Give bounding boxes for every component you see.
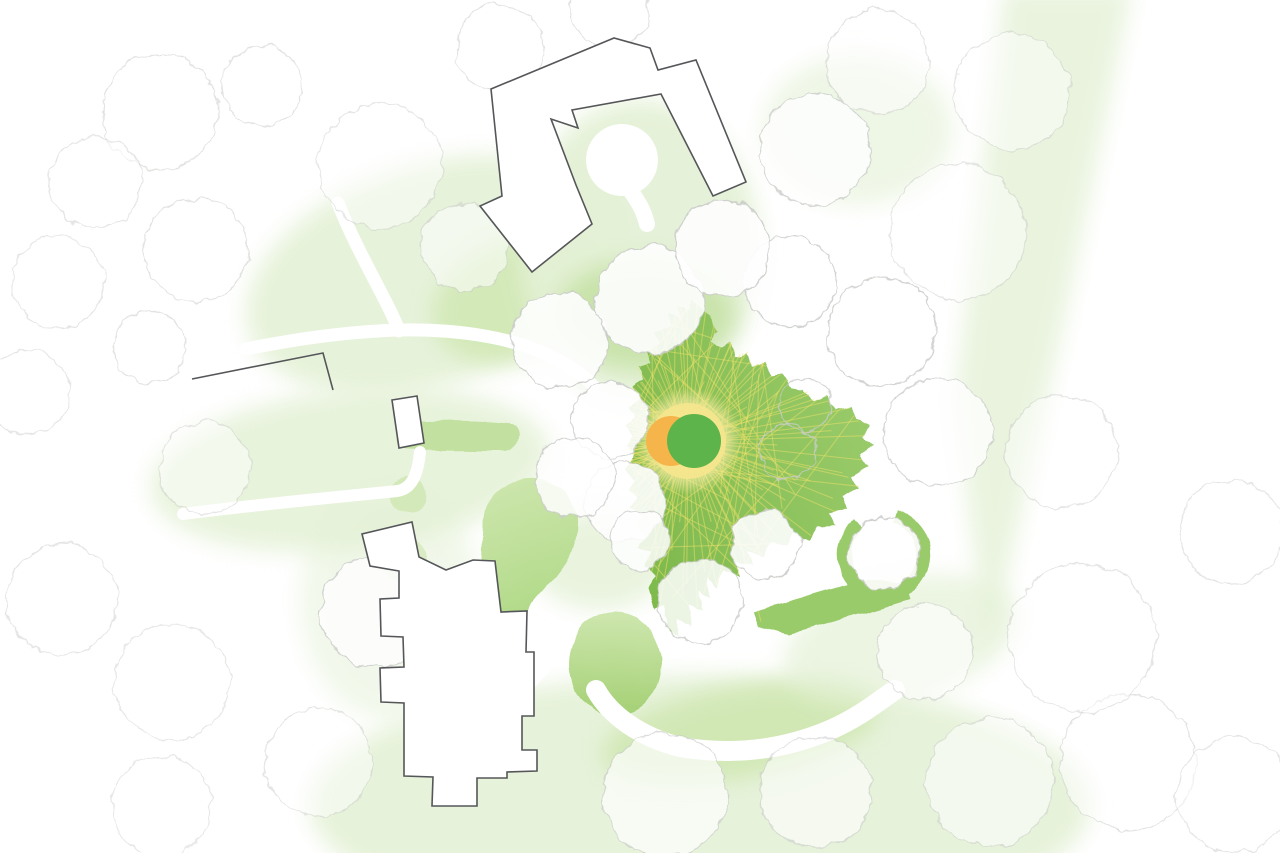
tree-canopy — [112, 756, 212, 853]
tree-canopy — [610, 510, 670, 570]
tree-canopy — [1180, 480, 1280, 584]
tree-canopy — [1006, 396, 1118, 508]
tree-canopy — [12, 236, 104, 328]
tree-canopy — [603, 733, 727, 853]
tree-canopy — [884, 378, 992, 486]
tree-canopy — [512, 292, 608, 388]
tree-canopy — [6, 544, 118, 656]
tree-canopy — [535, 437, 615, 517]
tree-canopy — [926, 718, 1054, 846]
tree-canopy — [114, 624, 230, 740]
tree-canopy — [1060, 694, 1196, 830]
tree-canopy — [222, 46, 302, 126]
tree-canopy — [264, 708, 372, 816]
tree-canopy — [658, 558, 742, 642]
tree-canopy — [877, 604, 973, 700]
tree-canopy — [114, 311, 186, 383]
tree-canopy — [318, 104, 442, 228]
tree-canopy — [954, 34, 1070, 150]
site-plan-map — [0, 0, 1280, 853]
tree-canopy — [826, 10, 930, 114]
site-plan-canvas — [0, 0, 1280, 853]
tree-canopy — [848, 517, 920, 589]
viewpoint-green-dot — [667, 414, 721, 468]
courtyard-plaza-circle — [586, 124, 658, 196]
tree-canopy — [759, 94, 871, 206]
tree-canopy — [144, 198, 248, 302]
tree-canopy — [0, 350, 70, 434]
tree-canopy — [890, 164, 1026, 300]
tree-canopy — [159, 422, 251, 514]
tree-canopy — [674, 200, 770, 296]
tree-canopy — [1008, 564, 1156, 712]
tree-canopy — [828, 278, 936, 386]
tree-canopy — [49, 136, 141, 228]
tree-canopy — [731, 511, 799, 579]
tree-canopy — [759, 736, 871, 848]
